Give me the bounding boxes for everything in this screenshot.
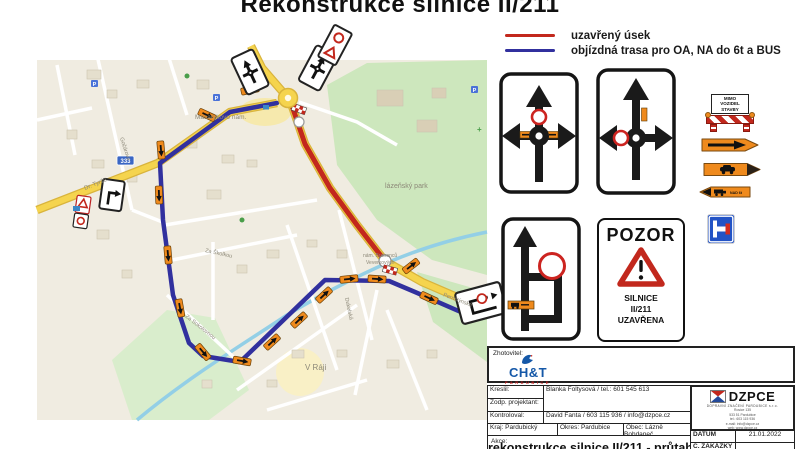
cht-bird-icon (519, 352, 537, 365)
svg-text:Masarykovo nám.: Masarykovo nám. (195, 114, 246, 121)
kreslil-label-cell: Kreslil: (487, 385, 544, 399)
detour-route-line-swatch (505, 49, 555, 53)
svg-text:nám. Bratranců: nám. Bratranců (363, 252, 397, 259)
roundabout (279, 89, 298, 108)
document-page: Rekonstrukce silnice II/211 uzavřený úse… (0, 0, 800, 449)
svg-text:lázeňský park: lázeňský park (385, 183, 428, 190)
barrier-leg (710, 124, 717, 132)
svg-text:Veverkových: Veverkových (366, 260, 395, 266)
sign-dead-end (707, 214, 735, 249)
closed-section-line-swatch (505, 34, 555, 38)
sign-crossroad-closure-1 (499, 72, 579, 199)
contractor-box: Zhotovitel: CH&T PARDUBICE (487, 346, 795, 383)
svg-text:P: P (215, 96, 219, 102)
barrier-line3: STAVBY (712, 107, 748, 112)
barrier-stripe-bar (706, 115, 754, 124)
dzpce-box: DZPCE DOPRAVNÍ ZNAČENÍ PARDUBICE s.r.o. … (690, 385, 795, 431)
barrier-text-card: MIMO VOZIDEL STAVBY (711, 94, 749, 114)
sign-crossroad-closure-2 (596, 68, 676, 200)
detour-map: 333 (37, 60, 487, 420)
bus-stop-icon (263, 105, 269, 110)
legend: uzavřený úsek objízdná trasa pro OA, NA … (505, 28, 781, 58)
sign-barrier-mimo-vozidel-stavby: MIMO VOZIDEL STAVBY (703, 94, 757, 132)
akce-cell: Akce: rekonstrukce silnice II/211 - průt… (487, 435, 691, 449)
sign-detour-scheme-closure (501, 217, 581, 346)
tree-icon (185, 74, 190, 79)
parking-icon: P (213, 94, 220, 102)
parking-icon: P (471, 86, 478, 94)
pozor-line3: UZAVŘENA (599, 315, 683, 326)
map-sign-warning-pair (318, 24, 353, 65)
legend-closed-label: uzavřený úsek (571, 30, 650, 42)
dzpce-logo-icon (710, 390, 726, 403)
legend-closed-row: uzavřený úsek (505, 28, 781, 43)
cht-name: CH&T (505, 365, 551, 380)
dzpce-address: Rosice 135 533 51 Pardubice tel.: 603 11… (692, 408, 793, 431)
parking-icon: P (91, 80, 98, 88)
sign-detour-arrow-car (703, 162, 761, 182)
map-background (37, 60, 487, 420)
sign-detour-arrow-right (701, 138, 759, 157)
barrier-leg (743, 124, 750, 132)
zakazka-value-cell (735, 442, 795, 449)
zakazka-label-cell: Č. ZAKÁZKY (690, 442, 736, 449)
svg-text:NAD 6t: NAD 6t (730, 191, 743, 195)
sign-pozor-closure: POZOR SILNICE II/211 UZAVŘENA (597, 218, 685, 342)
cht-logo: CH&T PARDUBICE (505, 352, 551, 385)
akce-value: rekonstrukce silnice II/211 - průtah (488, 441, 690, 449)
page-title: Rekonstrukce silnice II/211 (0, 0, 800, 19)
warning-triangle-icon (617, 246, 665, 288)
dzpce-name: DZPCE (729, 389, 776, 404)
legend-detour-label: objízdná trasa pro OA, NA do 6t a BUS (571, 45, 781, 57)
barrier-lamp-icon (749, 112, 755, 118)
title-block: Zhotovitel: CH&T PARDUBICE Kreslil: Zodp… (487, 346, 797, 449)
pozor-line2: II/211 (599, 304, 683, 315)
tree-icon (240, 218, 245, 223)
church-cross-icon: + (477, 125, 482, 134)
svg-text:V Ráji: V Ráji (305, 363, 327, 372)
svg-text:P: P (93, 82, 97, 88)
legend-detour-row: objízdná trasa pro OA, NA do 6t a BUS (505, 43, 781, 58)
svg-text:P: P (473, 88, 477, 94)
pozor-line1: SILNICE (599, 293, 683, 304)
sign-detour-arrow-truck-left: NAD 6t (699, 185, 751, 203)
kreslil-value-cell: Blanka Foltysová / tel.: 601 545 613 (543, 385, 691, 412)
bus-stop-icon (73, 206, 80, 211)
pozor-title: POZOR (599, 225, 683, 246)
zodp-label-cell: Zodp. projektant: (487, 398, 544, 412)
